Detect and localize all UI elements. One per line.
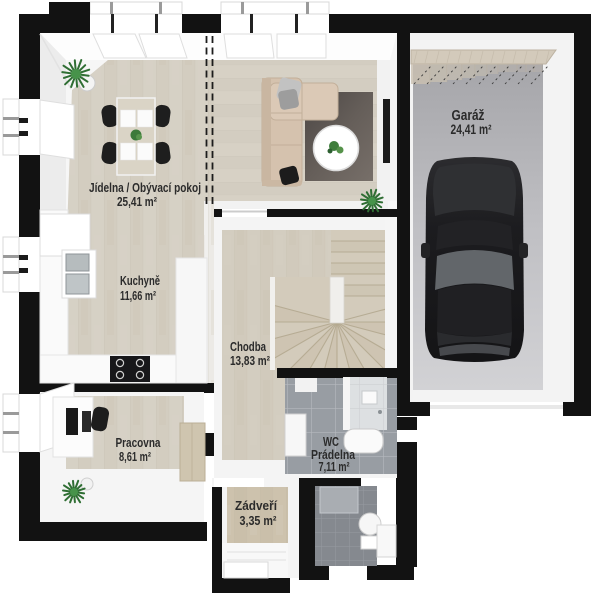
svg-text:24,41 m²: 24,41 m² [451,122,492,137]
svg-text:Pracovna: Pracovna [116,435,162,450]
svg-text:13,83 m²: 13,83 m² [230,353,271,368]
svg-text:7,11 m²: 7,11 m² [319,459,350,474]
svg-text:Zádveří: Zádveří [235,498,277,513]
svg-text:11,66 m²: 11,66 m² [120,288,156,303]
svg-text:Kuchyně: Kuchyně [120,273,160,288]
svg-text:8,61 m²: 8,61 m² [119,449,151,464]
svg-text:Jídelna / Obývací pokoj: Jídelna / Obývací pokoj [89,180,201,195]
svg-text:25,41 m²: 25,41 m² [117,194,158,209]
svg-text:3,35 m²: 3,35 m² [240,513,278,528]
svg-text:Chodba: Chodba [230,339,267,354]
